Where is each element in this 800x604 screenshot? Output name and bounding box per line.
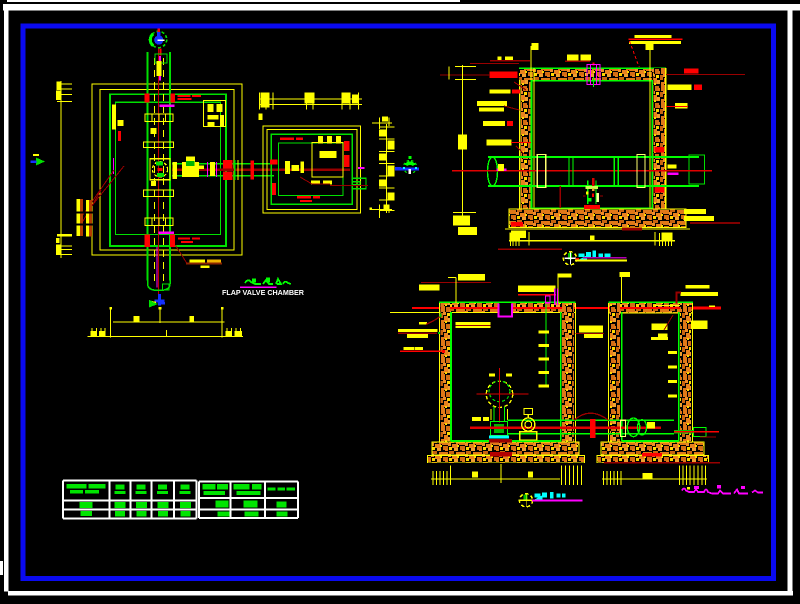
svg-text:FLAP VALVE CHAMBER: FLAP VALVE CHAMBER [222,288,305,297]
